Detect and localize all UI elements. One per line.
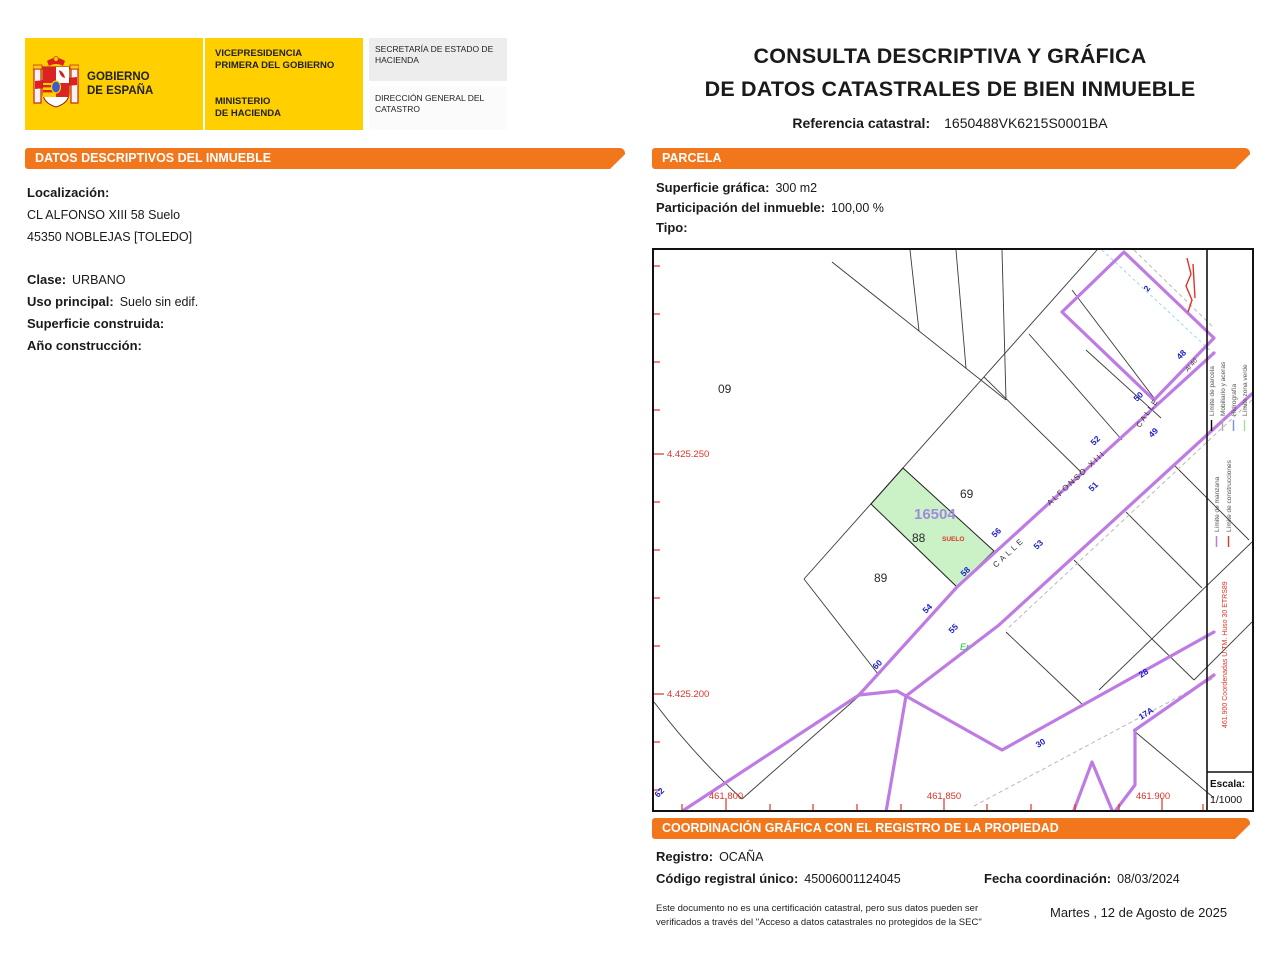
superficie-construida-label: Superficie construida:	[27, 316, 164, 331]
coord-label-x2: 461.850	[927, 791, 961, 802]
registro-label: Registro:	[656, 849, 713, 864]
anio-construccion-label: Año construcción:	[27, 338, 142, 353]
clase-label: Clase:	[27, 272, 66, 287]
legend-limite-parcela: Límite de parcela	[1209, 366, 1216, 416]
secretaria-box: SECRETARÍA DE ESTADO DE HACIENDA	[369, 38, 507, 81]
house-number: 52	[1088, 433, 1102, 447]
parcel-number-88: 88	[912, 531, 926, 545]
house-number: 56	[989, 525, 1003, 539]
ministerio-line2: DE HACIENDA	[215, 108, 363, 120]
registro-value: OCAÑA	[719, 850, 763, 864]
uso-principal-label: Uso principal:	[27, 294, 114, 309]
house-number: 51	[1086, 479, 1100, 493]
parcel-number-69: 69	[960, 487, 974, 501]
section-bar-coordinacion: COORDINACIÓN GRÁFICA CON EL REGISTRO DE …	[652, 818, 1250, 839]
house-number: 55	[946, 621, 960, 635]
street-alfonso-xiii-label: ALFONSO XIII	[1045, 449, 1107, 508]
title-line-2: DE DATOS CATASTRALES DE BIEN INMUEBLE	[660, 73, 1240, 106]
direccion-catastro-box: DIRECCIÓN GENERAL DEL CATASTRO	[369, 87, 507, 130]
parcel-number-09: 09	[718, 382, 732, 396]
parcel-use-label: SUELO	[942, 536, 964, 543]
superficie-grafica-label: Superficie gráfica:	[656, 180, 769, 195]
document-date: Martes , 12 de Agosto de 2025	[1050, 905, 1227, 920]
section-bar-datos-descriptivos: DATOS DESCRIPTIVOS DEL INMUEBLE	[25, 148, 625, 169]
coordinate-ticks-left	[654, 266, 664, 790]
legend-limite-manzana: Límite de manzana	[1214, 476, 1221, 532]
codigo-registral-label: Código registral único:	[656, 871, 798, 886]
scale-label: Escala:	[1210, 779, 1245, 790]
uso-principal-value: Suelo sin edif.	[120, 295, 199, 309]
fecha-coordinacion-value: 08/03/2024	[1117, 872, 1180, 886]
ref-catastral-value: 1650488VK6215S0001BA	[944, 115, 1107, 131]
vicepresidencia-line1: VICEPRESIDENCIA	[215, 48, 363, 60]
gobierno-label-line1: GOBIERNO	[87, 70, 153, 84]
gobierno-label-line2: DE ESPAÑA	[87, 84, 153, 98]
address-line-1: CL ALFONSO XIII 58 Suelo	[27, 204, 617, 226]
parcel-number-89: 89	[874, 571, 888, 585]
participacion-value: 100,00 %	[831, 201, 884, 215]
coord-label-x3: 461.900	[1136, 791, 1170, 802]
ministerio-logo-box: VICEPRESIDENCIA PRIMERA DEL GOBIERNO MIN…	[205, 38, 363, 130]
title-line-1: CONSULTA DESCRIPTIVA Y GRÁFICA	[660, 40, 1240, 73]
house-number: 53	[1031, 537, 1045, 551]
ref-catastral-label: Referencia catastral:	[792, 115, 930, 131]
vicepresidencia-line2: PRIMERA DEL GOBIERNO	[215, 60, 363, 72]
cadastral-map-svg: 4.425.250 4.425.200 461.800 461.850 461.…	[654, 250, 1252, 810]
cadastral-map[interactable]: 4.425.250 4.425.200 461.800 461.850 461.…	[652, 248, 1254, 812]
street-name-labels: CALLE ALFONSO XIII CALLE	[991, 396, 1160, 569]
superficie-grafica-value: 300 m2	[775, 181, 817, 195]
coord-label-y1: 4.425.250	[667, 449, 709, 460]
legend-coords-note: 461.900 Coordenadas U.TM. Huso 30 ETRS89	[1222, 581, 1229, 728]
hydrography-dashed-line	[1102, 250, 1214, 354]
coord-label-y2: 4.425.200	[667, 689, 709, 700]
legend-mobiliario: Mobiliario y aceras	[1220, 361, 1227, 416]
construction-limit-marks	[1186, 258, 1195, 312]
ministerio-line1: MINISTERIO	[215, 96, 363, 108]
house-number: 62	[654, 785, 666, 799]
tipo-label: Tipo:	[656, 220, 688, 235]
house-number: 30	[1034, 736, 1048, 750]
scale-box: Escala: 1/1000	[1207, 772, 1252, 806]
document-title: CONSULTA DESCRIPTIVA Y GRÁFICA DE DATOS …	[660, 40, 1240, 131]
coord-label-x1: 461.800	[709, 791, 743, 802]
legend-hidrografia: Hidrografía	[1231, 383, 1238, 416]
clase-value: URBANO	[72, 273, 125, 287]
house-number: 48	[1174, 347, 1188, 361]
gobierno-logo-box: GOBIERNO DE ESPAÑA	[25, 38, 203, 130]
house-number: 49	[1146, 425, 1160, 439]
scale-value: 1/1000	[1210, 794, 1242, 806]
section-bar-parcela: PARCELA	[652, 148, 1250, 169]
spain-coat-of-arms-icon	[33, 55, 79, 113]
manzana-number-label: 16504	[914, 506, 956, 523]
house-number: 2	[1141, 283, 1152, 293]
legend-limite-construcciones: Límite de construcciones	[1226, 459, 1233, 532]
address-line-2: 45350 NOBLEJAS [TOLEDO]	[27, 226, 617, 248]
localizacion-label: Localización:	[27, 185, 109, 200]
fecha-coordinacion-label: Fecha coordinación:	[984, 871, 1111, 886]
codigo-registral-value: 45006001124045	[804, 872, 900, 886]
participacion-label: Participación del inmueble:	[656, 200, 825, 215]
legend-zona-verde: Límite zona verde	[1242, 364, 1249, 416]
cultivo-label: Er	[960, 642, 970, 652]
government-logo-band: GOBIERNO DE ESPAÑA VICEPRESIDENCIA PRIME…	[25, 38, 507, 130]
